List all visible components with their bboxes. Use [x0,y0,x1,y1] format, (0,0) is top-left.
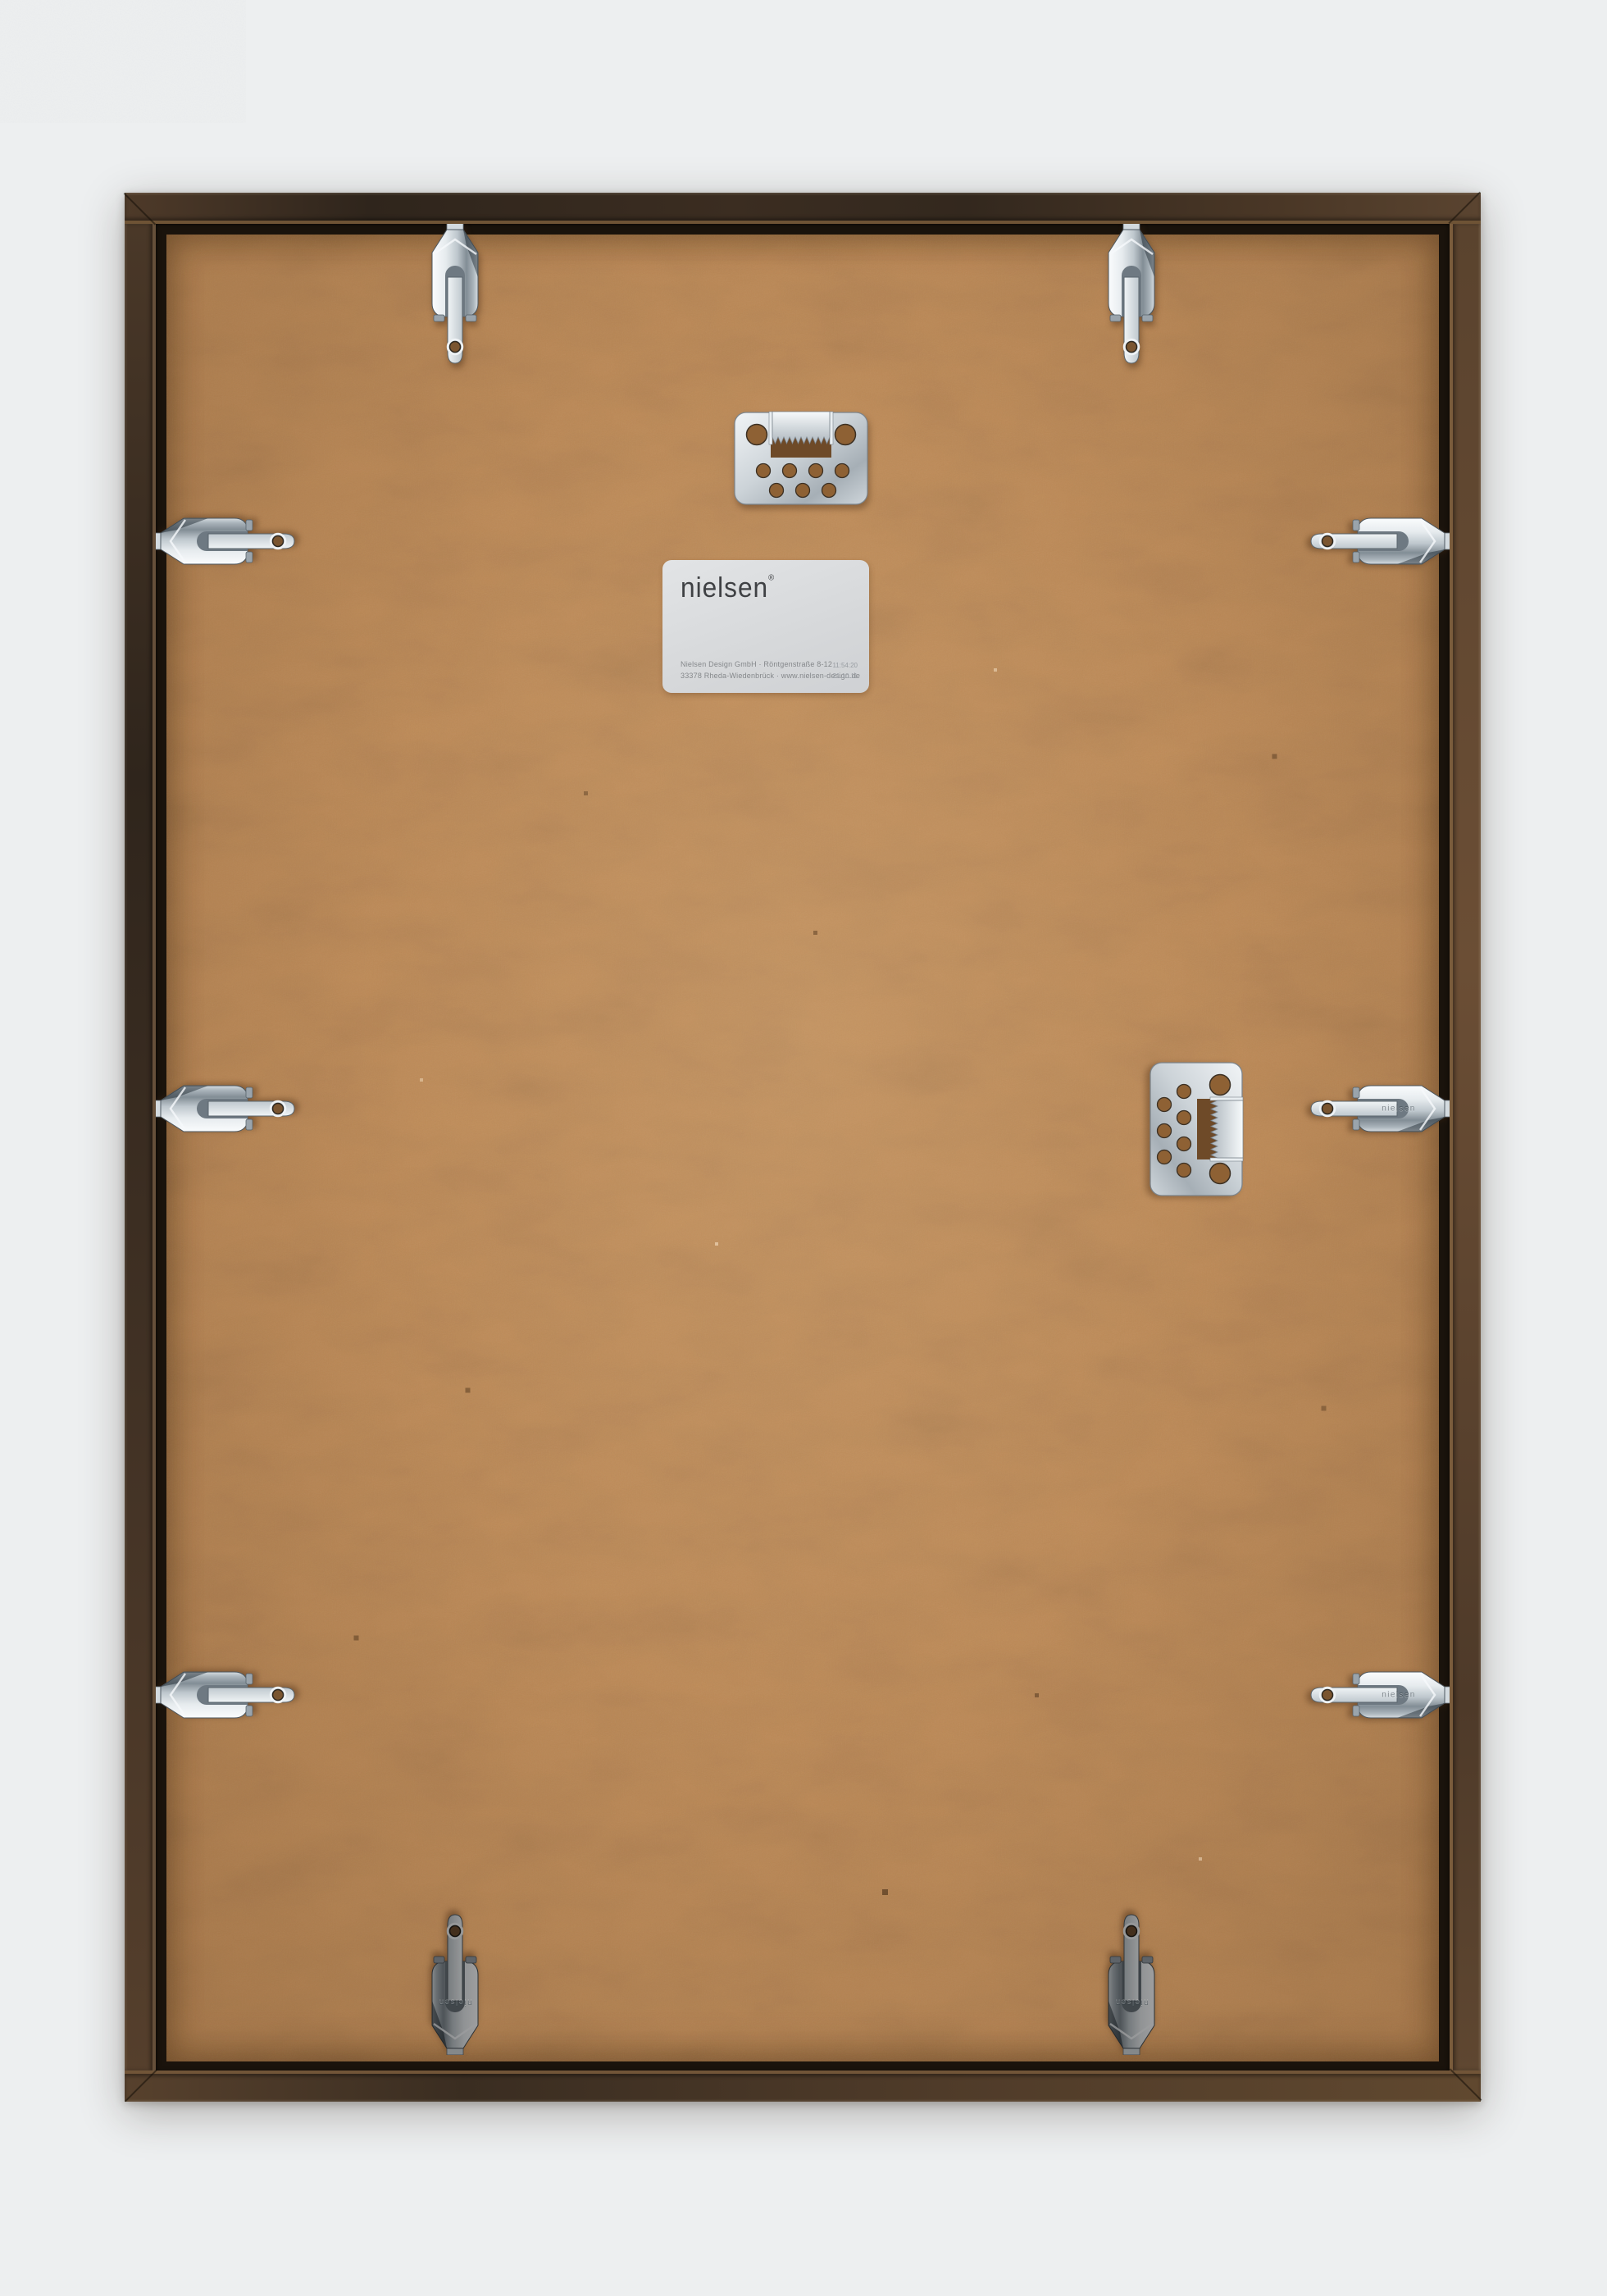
flexi-clip-icon [428,223,482,376]
sawtooth-hanger-icon [1148,1060,1245,1198]
flexi-clip-icon [1104,223,1159,376]
flexi-clip-icon [428,1902,482,2055]
flexi-clip-icon [1299,514,1451,568]
sawtooth-hanger-top [732,410,870,507]
frame-edge-right [1450,224,1481,2070]
flexi-clip-bottom-left: nielsen [428,1902,482,2055]
flexi-clip-icon [154,1668,307,1722]
flexi-clip-left-middle [154,1082,307,1136]
label-stamp-line1: 11:54:20 [832,661,858,672]
photo-grain-overlay [0,0,246,123]
flexi-clip-icon [1104,1902,1159,2055]
flexi-clip-right-middle: nielsen [1299,1082,1451,1136]
flexi-clip-left-lower [154,1668,307,1722]
dust-specks-light [166,235,168,236]
backing-board [166,235,1439,2061]
flexi-clip-icon [154,1082,307,1136]
brand-label: nielsen® Nielsen Design GmbH · Röntgenst… [662,560,869,693]
flexi-clip-top-left [428,223,482,376]
clip-engraving-text: nielsen [1382,1105,1416,1114]
sawtooth-hanger-right [1148,1060,1245,1198]
frame-edge-bottom [125,2070,1481,2102]
flexi-clip-right-upper [1299,514,1451,568]
frame-edge-left [125,224,156,2070]
brand-logo: nielsen® [681,572,774,604]
flexi-clip-icon [1299,1082,1451,1136]
clip-engraving-text: nielsen [1382,1691,1416,1700]
registered-mark: ® [768,573,774,582]
flexi-clip-left-upper [154,514,307,568]
flexi-clip-icon [154,514,307,568]
brand-logo-text: nielsen [681,572,768,603]
clip-engraving-text: nielsen [1114,1998,1149,2007]
flexi-clip-bottom-right: nielsen [1104,1902,1159,2055]
frame-edge-top [125,193,1481,224]
photo-background: nielsen® Nielsen Design GmbH · Röntgenst… [0,0,1607,2296]
flexi-clip-right-lower: nielsen [1299,1668,1451,1722]
clip-engraving-text: nielsen [438,1998,472,2007]
label-stamp: 11:54:20 21.10.11 [832,661,858,682]
label-stamp-line2: 21.10.11 [832,672,858,682]
flexi-clip-top-right [1104,223,1159,376]
flexi-clip-icon [1299,1668,1451,1722]
sawtooth-hanger-icon [732,410,870,507]
board-vignette [166,235,1439,2061]
